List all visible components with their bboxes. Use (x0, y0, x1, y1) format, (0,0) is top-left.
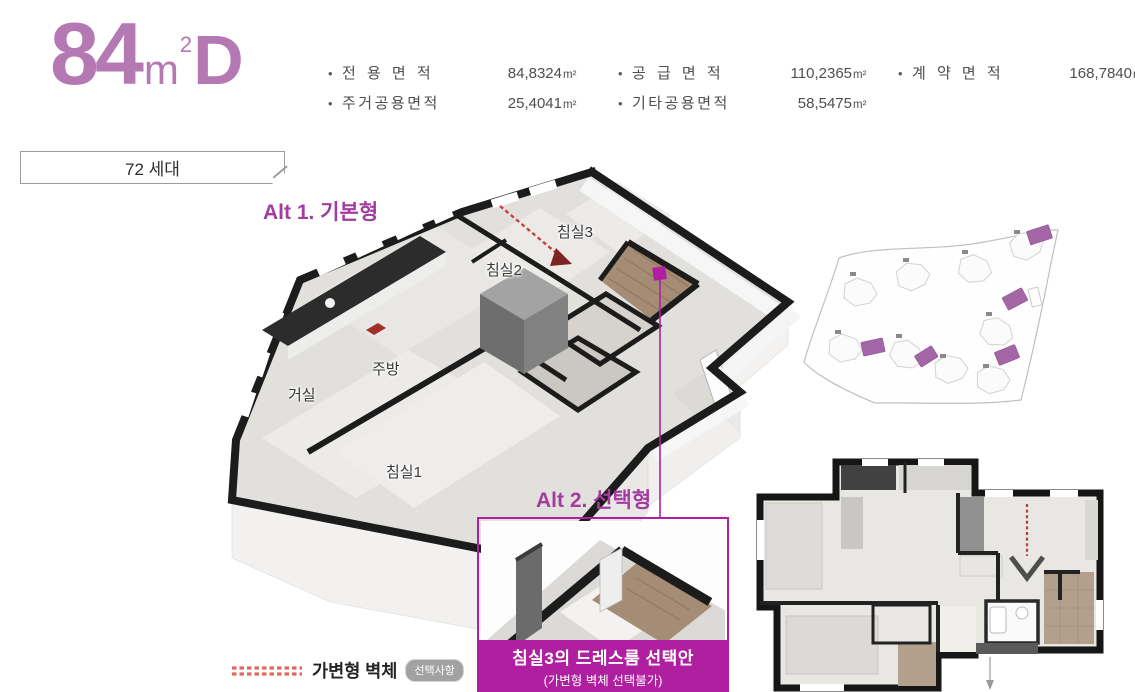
plan2d-render (757, 459, 1103, 691)
spec-unit: m² (853, 69, 866, 81)
spec-label: 계 약 면 적 (912, 62, 1040, 83)
bullet-icon: • (618, 66, 632, 81)
room-label-kitchen: 주방 (372, 358, 400, 379)
spec-value: 58,5475 (760, 95, 852, 112)
bullet-icon: • (898, 66, 912, 81)
bullet-icon: • (328, 66, 342, 81)
spec-label: 전 용 면 적 (342, 62, 470, 83)
spec-contract-area: • 계 약 면 적 168,7840 m² (898, 62, 1135, 92)
legend-option-badge: 선택사항 (405, 659, 463, 682)
spec-unit: m² (563, 69, 576, 81)
bullet-icon: • (328, 96, 342, 111)
spec-value: 110,2365 (760, 65, 852, 82)
site-plan (804, 225, 1058, 404)
alt2-caption-title: 침실3의 드레스룸 선택안 (479, 644, 727, 669)
area-specs-col1: • 전 용 면 적 84,8324 m² • 주거공용면적 25,4041 m² (328, 62, 576, 122)
household-count-badge: 72 세대 (20, 151, 285, 184)
dressroom-floor-2d (1044, 572, 1094, 644)
brochure-page: 84 m 2 D • 전 용 면 적 84,8324 m² • 주거공용면적 2… (0, 0, 1135, 692)
alt2-label: Alt 2. 선택형 (536, 484, 651, 514)
spec-supply-area: • 공 급 면 적 110,2365 m² (618, 62, 866, 92)
title-size: 84 (50, 10, 140, 98)
spec-unit: m² (563, 99, 576, 111)
spec-label: 기타공용면적 (632, 92, 760, 113)
title-variant: D (193, 25, 244, 95)
area-specs-col2: • 공 급 면 적 110,2365 m² • 기타공용면적 58,5475 m… (618, 62, 866, 122)
room-label-living: 거실 (288, 384, 316, 405)
spec-label: 주거공용면적 (342, 92, 470, 113)
dashed-wall-icon (230, 664, 304, 678)
alt2-caption-bar: 침실3의 드레스룸 선택안 (가변형 벽체 선택불가) (479, 640, 727, 690)
alt2-inset-box: 침실3의 드레스룸 선택안 (가변형 벽체 선택불가) (477, 517, 729, 692)
unit-type-title: 84 m 2 D (50, 10, 244, 98)
spec-exclusive-area: • 전 용 면 적 84,8324 m² (328, 62, 576, 92)
alt2-caption-note: (가변형 벽체 선택불가) (479, 670, 727, 689)
area-specs-col3: • 계 약 면 적 168,7840 m² (898, 62, 1135, 92)
title-unit: m (144, 49, 179, 91)
alt1-label: Alt 1. 기본형 (263, 196, 378, 226)
bullet-icon: • (618, 96, 632, 111)
spec-value: 84,8324 (470, 65, 562, 82)
room-label-bed1: 침실1 (386, 461, 422, 482)
room-label-bed3: 침실3 (557, 221, 593, 242)
spec-value: 25,4041 (470, 95, 562, 112)
room-label-bed2: 침실2 (486, 259, 522, 280)
household-count-label: 72 세대 (125, 155, 180, 180)
movable-wall-legend: 가변형 벽체 선택사항 (230, 658, 464, 683)
spec-label: 공 급 면 적 (632, 62, 760, 83)
spec-residential-common-area: • 주거공용면적 25,4041 m² (328, 92, 576, 122)
title-unit-sup: 2 (180, 34, 192, 56)
spec-value: 168,7840 (1040, 65, 1132, 82)
legend-label: 가변형 벽체 (312, 658, 397, 683)
spec-other-common-area: • 기타공용면적 58,5475 m² (618, 92, 866, 122)
spec-unit: m² (853, 99, 866, 111)
dressroom-marker (652, 266, 667, 281)
